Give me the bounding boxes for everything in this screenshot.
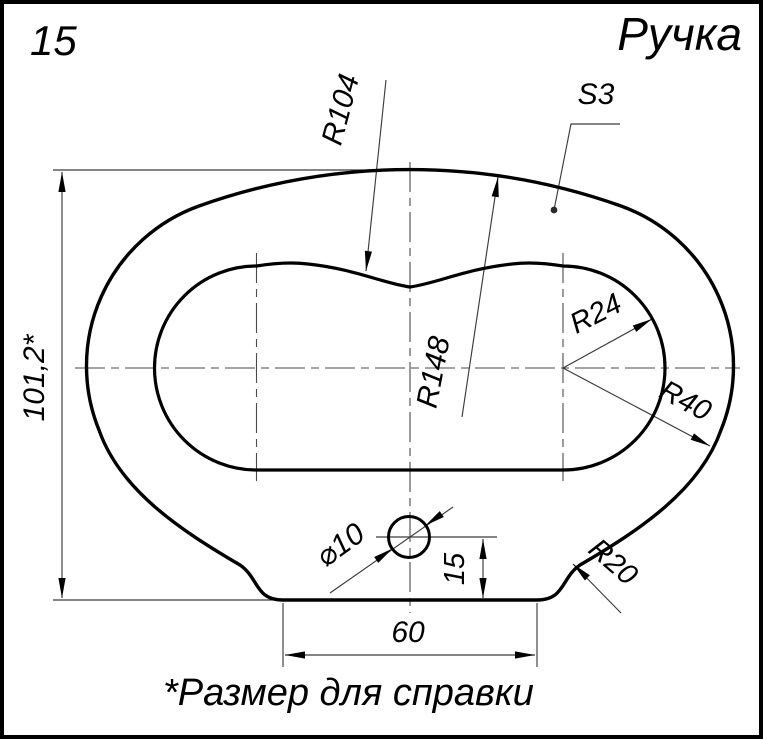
leader-s3	[554, 124, 620, 210]
technical-drawing: 15 Ручка 101,2* R104 S3 R148 R24 R40 R20…	[4, 4, 759, 735]
label-overall-height: 101,2*	[18, 333, 51, 421]
labels: 15 Ручка 101,2* R104 S3 R148 R24 R40 R20…	[18, 8, 742, 714]
label-r104: R104	[316, 71, 366, 149]
sheet-number: 15	[30, 17, 77, 64]
s3-surface-dot	[551, 207, 558, 214]
leader-r104	[366, 80, 386, 271]
arrow-r148	[492, 176, 502, 197]
arrow-r104	[362, 251, 372, 272]
drawing-title: Ручка	[617, 8, 742, 60]
label-s3: S3	[578, 78, 615, 111]
label-hole-diameter: ⌀10	[310, 517, 371, 574]
arrow-60-right	[515, 651, 535, 658]
arrow-15-top	[479, 539, 486, 559]
label-base-width: 60	[391, 616, 425, 649]
reference-note: *Размер для справки	[163, 672, 534, 714]
arrowheads	[58, 172, 711, 659]
arrow-60-left	[285, 651, 305, 658]
arrow-15-bottom	[479, 578, 486, 598]
drawing-sheet: 15 Ручка 101,2* R104 S3 R148 R24 R40 R20…	[0, 0, 763, 739]
arrow-height-top	[58, 172, 65, 192]
label-hole-height: 15	[439, 552, 471, 585]
label-r24: R24	[565, 288, 627, 341]
centerlines	[75, 162, 740, 613]
dim-r148-line	[462, 177, 498, 417]
arrow-r40	[691, 433, 712, 449]
label-r148: R148	[411, 334, 457, 411]
arrow-height-bottom	[58, 578, 65, 598]
